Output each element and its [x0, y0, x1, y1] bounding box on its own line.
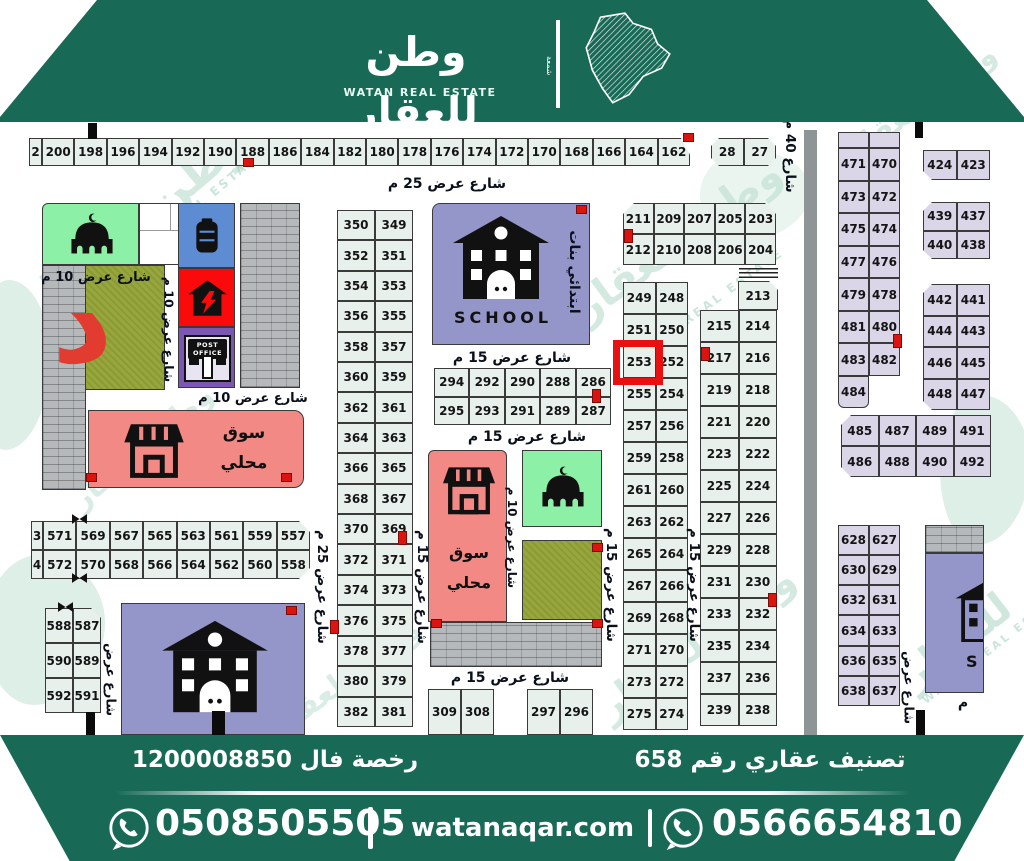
school-label-partial: S	[966, 652, 982, 671]
plot-cell: 443	[957, 316, 991, 348]
plot-cell: 231	[700, 566, 739, 598]
red-x-marker	[286, 606, 297, 615]
plot-cell: 225	[700, 470, 739, 502]
plot-cell: 291	[505, 397, 540, 426]
plots-286-295: 294292290288286295293291289287	[434, 368, 611, 425]
red-x-marker	[281, 473, 292, 482]
plot-cell: 209	[654, 203, 685, 234]
plot-cell: 200	[42, 138, 74, 166]
red-x-marker	[592, 543, 603, 552]
plot-cell: 571	[43, 521, 76, 550]
road-tick	[915, 121, 923, 138]
plot-cell: 207	[684, 203, 715, 234]
park-block-2	[522, 540, 602, 620]
plot-cell: 275	[623, 698, 656, 730]
plot-cell: 361	[375, 392, 413, 422]
street-label-15m-vertical: شارع عرض 15 م	[603, 520, 619, 650]
phone-right[interactable]: 0566654810	[712, 803, 920, 844]
plot-cell: 270	[656, 634, 689, 666]
electricity-block	[178, 268, 235, 327]
plots-557-572: 5715695675655635615595575725705685665645…	[43, 521, 310, 579]
plot-cell: 476	[869, 246, 900, 279]
electric-house-icon	[186, 274, 229, 322]
plot-cell: 355	[375, 301, 413, 331]
plot-cell: 266	[656, 570, 689, 602]
plot-cell: 258	[656, 442, 689, 474]
plot-cell: 289	[540, 397, 575, 426]
bowtie-marker	[72, 573, 87, 583]
plot-cell: 368	[337, 484, 375, 514]
road-tick	[86, 712, 95, 735]
plots-587-592: 588587590589592591	[45, 608, 101, 713]
plot-cell: 190	[204, 138, 236, 166]
plot-cell: 269	[623, 602, 656, 634]
street-label-15m-vertical: شارع عرض 15 م	[686, 520, 702, 650]
plot-cell: 442	[923, 284, 957, 316]
brick-block	[240, 203, 300, 388]
road-tick	[88, 123, 97, 139]
plot-cell: 569	[76, 521, 109, 550]
footer-separator	[648, 809, 652, 847]
plot-cell: 228	[739, 534, 778, 566]
window	[216, 355, 226, 365]
street-label-10m-vertical: شارع عرض 10 م	[162, 270, 177, 390]
plot-cell: 272	[656, 666, 689, 698]
market-icon	[440, 463, 498, 515]
plot-cell: 214	[739, 310, 778, 342]
plot-cell: 564	[177, 550, 210, 579]
street-label-15m: شارع عرض 15 م	[468, 429, 586, 445]
plot-cell: 376	[337, 605, 375, 635]
plot-cell: 186	[269, 138, 301, 166]
website-link[interactable]: watanaqar.com	[405, 813, 640, 843]
plot-cell: 170	[528, 138, 560, 166]
plot-cell: 364	[337, 423, 375, 453]
plot-cell: 227	[700, 502, 739, 534]
plot-cell: 203	[745, 203, 776, 234]
plot-cell: 382	[337, 697, 375, 727]
plots-203-212: 211209207205203212210208206204	[623, 203, 776, 265]
plots-349-382: 3503493523513543533563553583573603593623…	[337, 210, 413, 727]
plot-cell: 357	[375, 332, 413, 362]
plot-cell: 184	[301, 138, 333, 166]
footer-banner: تصنيف عقاري رقم 658 رخصة فال 1200008850 …	[0, 735, 1024, 861]
plot-cell: 375	[375, 605, 413, 635]
plot-cell: 268	[656, 602, 689, 634]
plot-cell: 248	[656, 282, 689, 314]
bowtie-marker	[58, 602, 73, 612]
plot-cell: 363	[375, 423, 413, 453]
plot-cell: 631	[869, 585, 900, 615]
plot-cell: 28	[711, 138, 744, 166]
plot-cell: 359	[375, 362, 413, 392]
plot-cell: 294	[434, 368, 469, 397]
street-label-partial: شارع عرض	[901, 640, 916, 736]
plot-cell: 567	[110, 521, 143, 550]
plot-cell: 488	[879, 446, 917, 477]
plot-cell-484: 484	[838, 376, 869, 408]
logo-mark: شمعة	[540, 28, 554, 104]
market-icon	[121, 419, 187, 479]
red-x-marker	[398, 531, 407, 545]
plot-cell: 482	[869, 343, 900, 376]
plot-cell: 489	[916, 415, 954, 446]
plot-cell: 206	[715, 234, 746, 265]
plot-cell: 566	[143, 550, 176, 579]
plot-cell: 471	[838, 148, 869, 181]
school-icon	[160, 618, 270, 714]
plot-cell: 263	[623, 506, 656, 538]
plot-cell: 354	[337, 271, 375, 301]
plot-cell: 295	[434, 397, 469, 426]
plot-cell: 352	[337, 240, 375, 270]
plot-cell: 204	[745, 234, 776, 265]
plot-cell: 568	[110, 550, 143, 579]
plot-cell: 477	[838, 246, 869, 279]
road-tick	[212, 711, 225, 735]
plot-cell: 293	[469, 397, 504, 426]
plot-cell: 362	[337, 392, 375, 422]
plot-cell: 198	[74, 138, 106, 166]
plot-cell: 381	[375, 697, 413, 727]
plot-cell: 487	[879, 415, 917, 446]
plot-cell: 558	[277, 550, 310, 579]
market-label-line2: محلي	[209, 453, 279, 473]
red-x-marker	[243, 158, 254, 167]
school-label-ar: ابتدائي بنات	[566, 217, 582, 327]
plot-cell: 635	[869, 646, 900, 676]
highlighted-plot-253-box	[613, 340, 663, 385]
plot-cell: 290	[505, 368, 540, 397]
street-label-meem-partial: م	[958, 695, 968, 711]
plot-cell: 168	[560, 138, 592, 166]
plots-308-309: 309308	[428, 689, 494, 735]
plot-cell: 446	[923, 347, 957, 379]
street-label-10m: شارع عرض 10 م	[198, 391, 308, 406]
header-banner: وطن للعقار WATAN REAL ESTATE شمعة	[0, 0, 1024, 122]
door	[202, 355, 213, 379]
school-icon	[954, 576, 984, 642]
plot-cell: 424	[923, 150, 957, 180]
footer-separator	[368, 807, 373, 849]
plot-cell: 589	[73, 643, 101, 678]
plot-map-flyer: وطن للعقار WATAN REAL ESTATE وطن للعقار …	[0, 0, 1024, 861]
school-block-top: SCHOOL ابتدائي بنات	[432, 203, 590, 345]
school-label-en: SCHOOL	[443, 308, 563, 327]
plot-cell: 492	[954, 446, 992, 477]
plots-441-448: 442441444443446445448447	[923, 284, 990, 410]
plot-cell: 351	[375, 240, 413, 270]
plot-cell: 557	[277, 521, 310, 550]
plot-cell: 637	[869, 676, 900, 706]
mosque-icon	[538, 459, 588, 515]
road-40m	[804, 130, 817, 738]
plot-cell: 373	[375, 575, 413, 605]
plot-cell: 632	[838, 585, 869, 615]
plot-cell: 439	[923, 202, 957, 231]
street-label-15m: شارع عرض 15 م	[451, 670, 569, 686]
plot-cell: 234	[739, 630, 778, 662]
street-label-25m: شارع عرض 25 م	[388, 176, 506, 192]
street-label-10m-vertical: شارع عرض 10 م	[505, 492, 519, 588]
plot-cell: 366	[337, 453, 375, 483]
plot-cell: 264	[656, 538, 689, 570]
plot-cell: 237	[700, 662, 739, 694]
plots-top-row: 2001981961941921901881861841821801781761…	[42, 138, 690, 166]
plot-cell-partial: 2	[29, 138, 42, 166]
plot-cell: 349	[375, 210, 413, 240]
red-x-marker	[576, 205, 587, 214]
plot-cell: 249	[623, 282, 656, 314]
red-x-marker	[330, 620, 339, 634]
plot-cell: 485	[841, 415, 879, 446]
plot-cell: 367	[375, 484, 413, 514]
plot-cell: 261	[623, 474, 656, 506]
license-text: رخصة فال 1200008850	[40, 747, 510, 773]
plot-cell: 481	[838, 311, 869, 344]
plot-cell: 194	[139, 138, 171, 166]
red-x-marker	[701, 347, 710, 361]
plot-cell: 587	[73, 608, 101, 643]
plot-cell: 356	[337, 301, 375, 331]
market-block-2: سوق محلي	[428, 450, 507, 622]
plot-cell: 490	[916, 446, 954, 477]
plot-cell: 592	[45, 678, 73, 713]
window	[189, 355, 199, 365]
plot-cell: 562	[210, 550, 243, 579]
plot-cell: 638	[838, 676, 869, 706]
plot-cell: 273	[623, 666, 656, 698]
street-label-25m-vertical: شارع عرض 25 م	[314, 522, 330, 652]
red-x-marker	[683, 133, 694, 142]
plot-cell: 370	[337, 514, 375, 544]
plot-cell: 371	[375, 544, 413, 574]
plot-cell: 360	[337, 362, 375, 392]
plot-cell: 438	[957, 231, 991, 260]
plot-cell: 4	[31, 550, 43, 579]
plot-cell: 423	[957, 150, 991, 180]
plot-cell: 238	[739, 694, 778, 726]
plot-cell: 257	[623, 410, 656, 442]
logo-divider	[556, 20, 560, 108]
plot-cell: 164	[625, 138, 657, 166]
plot-cell: 208	[684, 234, 715, 265]
plot-cell: 374	[337, 575, 375, 605]
plot-cell: 590	[45, 643, 73, 678]
plot-cell: 628	[838, 525, 869, 555]
plot-cell: 448	[923, 379, 957, 411]
brick-block-bottom	[430, 622, 602, 667]
market-label-line1: سوق	[434, 543, 504, 562]
plot-cell: 350	[337, 210, 375, 240]
red-x-marker	[768, 593, 777, 607]
plot-cell: 267	[623, 570, 656, 602]
plot-cell: 288	[540, 368, 575, 397]
plot-cell: 379	[375, 666, 413, 696]
plot-cell: 636	[838, 646, 869, 676]
parking-hatch	[739, 268, 778, 280]
mosque-icon	[67, 210, 117, 258]
plot-cell-213: 213	[738, 281, 778, 310]
plots-470-483: 4714704734724754744774764794784814804834…	[838, 148, 900, 376]
plot-cell: 221	[700, 406, 739, 438]
plot-cell: 166	[593, 138, 625, 166]
plot-cell: 216	[739, 342, 778, 374]
whatsapp-icon[interactable]	[106, 805, 152, 851]
plot-cell: 559	[243, 521, 276, 550]
plot-cell: 274	[656, 698, 689, 730]
plots-296-297: 297296	[527, 689, 593, 735]
plot-cell: 178	[398, 138, 430, 166]
market-label-line1: سوق	[209, 423, 279, 443]
red-x-marker	[86, 473, 97, 482]
plot-cell: 372	[337, 544, 375, 574]
school-icon	[451, 213, 551, 301]
plot-cell	[869, 132, 900, 148]
plot-cell: 235	[700, 630, 739, 662]
plot-cell: 176	[431, 138, 463, 166]
phone-left[interactable]: 0508505505	[155, 803, 363, 844]
plots-423-424: 424423	[923, 150, 990, 180]
plot-cell: 236	[739, 662, 778, 694]
plot-cell: 220	[739, 406, 778, 438]
water-tank-block	[178, 203, 235, 268]
plot-cell: 308	[461, 689, 494, 735]
plot-cell: 229	[700, 534, 739, 566]
divider	[170, 204, 171, 230]
plot-cell: 196	[107, 138, 139, 166]
school-block-right-clipped: S	[925, 553, 984, 693]
plots-28-27: 2827	[711, 138, 776, 166]
bowtie-marker	[72, 514, 87, 524]
plot-cell: 474	[869, 213, 900, 246]
plot-cell: 563	[177, 521, 210, 550]
plot-cell: 3	[31, 521, 43, 550]
street-label-15m: شارع عرض 15 م	[453, 350, 571, 366]
plot-cell: 627	[869, 525, 900, 555]
footer-divider	[115, 791, 910, 795]
saudi-map-icon	[572, 6, 684, 114]
plot-cell: 472	[869, 181, 900, 214]
mosque-block-2	[522, 450, 602, 527]
plot-cell: 27	[744, 138, 777, 166]
plot-cell: 233	[700, 598, 739, 630]
plot-cell: 378	[337, 636, 375, 666]
plot-cell: 219	[700, 374, 739, 406]
plots-partial-top	[838, 132, 900, 148]
plot-cell: 591	[73, 678, 101, 713]
plot-cell: 358	[337, 332, 375, 362]
street-label-40m: شارع 40 م	[782, 118, 798, 194]
plot-cell: 365	[375, 453, 413, 483]
red-x-marker	[431, 619, 442, 628]
plot-cell: 445	[957, 347, 991, 379]
road-tick	[916, 710, 925, 735]
plot-cell: 633	[869, 615, 900, 645]
post-office-block: POST OFFICE	[178, 327, 235, 388]
plot-cell: 292	[469, 368, 504, 397]
plot-cell: 629	[869, 555, 900, 585]
plot-cell: 182	[334, 138, 366, 166]
plot-cell: 478	[869, 278, 900, 311]
plot-cell: 486	[841, 446, 879, 477]
plot-cell: 483	[838, 343, 869, 376]
plot-cell: 222	[739, 438, 778, 470]
brand-name-arabic: وطن للعقار	[318, 22, 514, 84]
plot-cell: 210	[654, 234, 685, 265]
market-label-line2: محلي	[434, 573, 504, 592]
street-label-15m-vertical: شارع عرض 15 م	[414, 522, 430, 652]
plots-214-239: 2152142172162192182212202232222252242272…	[700, 310, 777, 726]
plot-cell: 256	[656, 410, 689, 442]
plot-cell: 491	[954, 415, 992, 446]
plot-cell: 470	[869, 148, 900, 181]
brick-block-right	[925, 525, 984, 553]
plot-cell: 309	[428, 689, 461, 735]
plot-cell: 215	[700, 310, 739, 342]
water-tank-icon	[191, 208, 223, 264]
red-x-marker	[592, 389, 601, 403]
street-label-partial: شارع عرض	[103, 642, 118, 718]
post-office-icon: POST OFFICE	[184, 335, 231, 382]
plots-485-492: 485487489491486488490492	[841, 415, 991, 477]
plot-cell: 560	[243, 550, 276, 579]
plot-cell: 634	[838, 615, 869, 645]
plots-partial-573: 34	[31, 521, 43, 579]
plots-627-638: 628627630629632631634633636635638637	[838, 525, 900, 706]
plot-cell: 218	[739, 374, 778, 406]
whatsapp-icon[interactable]	[660, 805, 706, 851]
plot-cell: 561	[210, 521, 243, 550]
red-x-marker	[624, 229, 633, 243]
plot-cell: 262	[656, 506, 689, 538]
plot-cell: 377	[375, 636, 413, 666]
plot-cell: 226	[739, 502, 778, 534]
plot-cell: 565	[143, 521, 176, 550]
plot-cell: 444	[923, 316, 957, 348]
plots-437-440: 439437440438	[923, 202, 990, 259]
plot-cell: 180	[366, 138, 398, 166]
plot-cell: 205	[715, 203, 746, 234]
plot-cell: 296	[560, 689, 593, 735]
plot-cell: 174	[463, 138, 495, 166]
plot-cell: 475	[838, 213, 869, 246]
plot-cell: 239	[700, 694, 739, 726]
classification-text: تصنيف عقاري رقم 658	[540, 747, 1000, 773]
market-block: سوق محلي	[88, 410, 304, 488]
plot-cell: 223	[700, 438, 739, 470]
red-x-marker	[592, 619, 603, 628]
plot-cell: 479	[838, 278, 869, 311]
plot-cell: 447	[957, 379, 991, 411]
plot-cell: 588	[45, 608, 73, 643]
plot-cell: 172	[496, 138, 528, 166]
plot-cell: 353	[375, 271, 413, 301]
plot-cell: 369	[375, 514, 413, 544]
street-label-10m: شارع عرض 10 م	[41, 270, 151, 285]
plot-cell: 437	[957, 202, 991, 231]
plot-cell: 441	[957, 284, 991, 316]
plot-cell: 271	[623, 634, 656, 666]
plot-cell: 259	[623, 442, 656, 474]
plot-cell: 630	[838, 555, 869, 585]
plot-cell	[838, 132, 869, 148]
plot-cell: 297	[527, 689, 560, 735]
plot-cell: 162	[658, 138, 690, 166]
plot-cell: 260	[656, 474, 689, 506]
brand-name-english: WATAN REAL ESTATE	[330, 86, 510, 99]
red-x-marker	[893, 334, 902, 348]
